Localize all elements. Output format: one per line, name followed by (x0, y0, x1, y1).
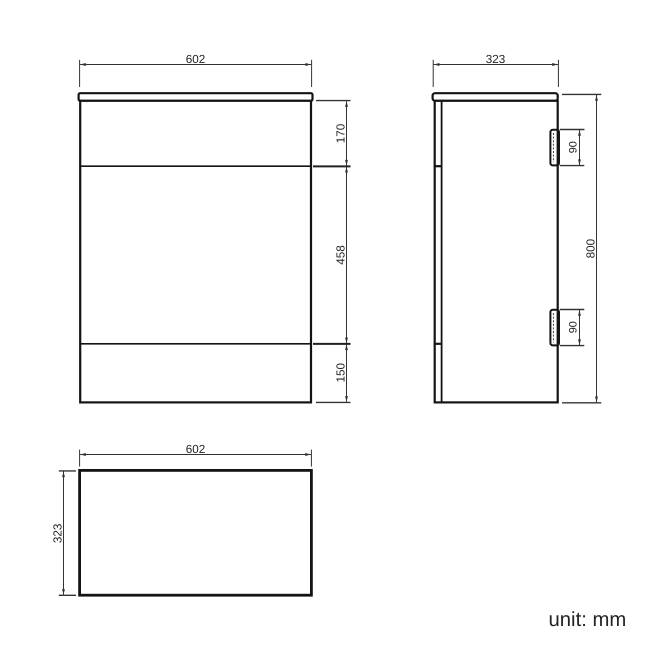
svg-text:458: 458 (334, 245, 347, 265)
svg-text:170: 170 (334, 123, 347, 143)
svg-text:602: 602 (186, 53, 206, 66)
svg-text:800: 800 (584, 238, 597, 258)
svg-text:150: 150 (334, 363, 347, 383)
svg-text:90: 90 (567, 321, 579, 333)
svg-text:323: 323 (52, 524, 65, 544)
svg-text:unit: mm: unit: mm (549, 609, 627, 631)
svg-text:323: 323 (486, 53, 506, 66)
svg-text:90: 90 (567, 141, 579, 153)
svg-text:602: 602 (186, 443, 206, 456)
